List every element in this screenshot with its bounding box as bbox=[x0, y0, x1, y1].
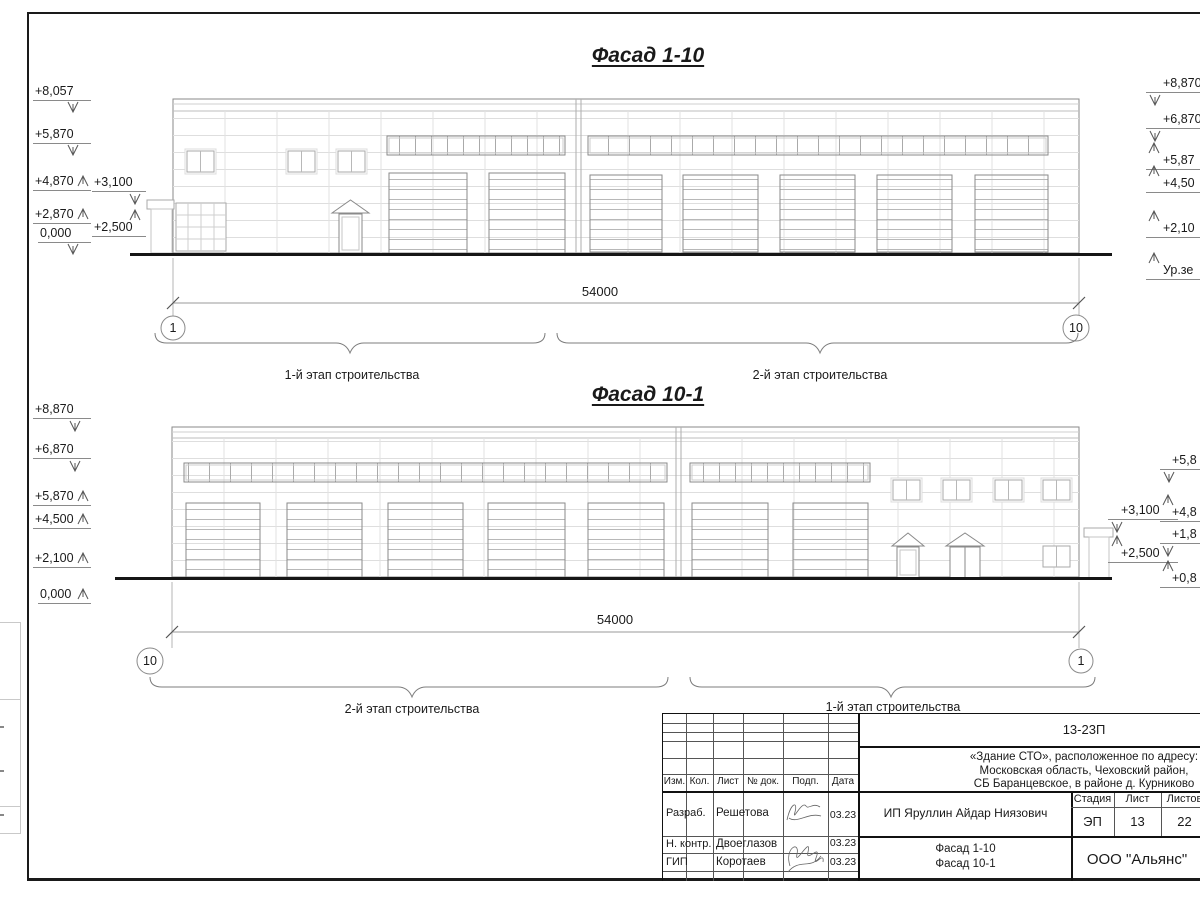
tb-name: Коротаев bbox=[716, 856, 786, 868]
facade-1-10-drawing bbox=[130, 90, 1120, 258]
tb-sheets-value: 22 bbox=[1161, 814, 1200, 829]
tb-address-line: Московская область, Чеховский район, bbox=[934, 765, 1200, 777]
elevation-mark: +6,870 bbox=[33, 442, 91, 459]
axis-bubble-label: 10 bbox=[136, 654, 164, 668]
elevation-mark: +2,10 bbox=[1146, 221, 1200, 238]
tb-name: Решетова bbox=[716, 807, 786, 819]
elevation-arrow-down-icon bbox=[68, 419, 82, 433]
tb-col-kol: Кол. bbox=[686, 776, 713, 787]
elevation-arrow-up-icon bbox=[76, 512, 90, 526]
stage-1-label: 1-й этап строительства bbox=[252, 368, 452, 382]
adjacent-sheet-text-speck bbox=[0, 814, 4, 816]
axis-bubble-label: 1 bbox=[1069, 654, 1093, 668]
axis-bubble-label: 10 bbox=[1062, 321, 1090, 335]
drawing-sheet: Фасад 1-10 bbox=[0, 0, 1200, 900]
elevation-arrow-up-icon bbox=[1161, 493, 1175, 507]
elevation-arrow-up-icon bbox=[76, 551, 90, 565]
stage-1-label: 1-й этап строительства bbox=[793, 700, 993, 714]
tb-address-line: СБ Баранцевское, в районе д. Курниково bbox=[934, 778, 1200, 790]
elevation-mark: +0,8 bbox=[1160, 571, 1200, 588]
elevation-arrow-up-icon bbox=[128, 208, 142, 222]
signature bbox=[781, 792, 828, 880]
elevation-mark: +3,100 bbox=[92, 175, 146, 192]
tb-col-data: Дата bbox=[828, 776, 858, 787]
adjacent-sheet-line bbox=[0, 833, 20, 834]
elevation-mark: +4,50 bbox=[1146, 176, 1200, 193]
elevation-arrow-down-icon bbox=[128, 192, 142, 206]
facade-10-1-title: Фасад 10-1 bbox=[498, 383, 798, 407]
elevation-arrow-down-icon bbox=[66, 100, 80, 114]
elevation-arrow-up-icon bbox=[76, 489, 90, 503]
facade-1-10-title: Фасад 1-10 bbox=[498, 44, 798, 68]
elevation-mark: Ур.зе bbox=[1146, 263, 1200, 280]
tb-sheets-label: Листов bbox=[1161, 793, 1200, 805]
tb-client: ИП Яруллин Айдар Ниязович bbox=[863, 806, 1068, 820]
tb-role: ГИП bbox=[666, 856, 716, 868]
tb-doc-number: 13-23П bbox=[984, 722, 1184, 737]
elevation-arrow-up-icon bbox=[76, 174, 90, 188]
tb-date: 03.23 bbox=[828, 809, 858, 821]
elevation-arrow-up-icon bbox=[76, 587, 90, 601]
adjacent-sheet-line bbox=[0, 622, 20, 623]
facade-10-1-dimensions bbox=[115, 580, 1120, 715]
frame-left bbox=[27, 12, 29, 880]
tb-role: Разраб. bbox=[666, 807, 716, 819]
stage-2-label: 2-й этап строительства bbox=[312, 702, 512, 716]
elevation-mark: +6,870 bbox=[1146, 112, 1200, 129]
title-block: Изм. Кол. Лист № док. Подп. Дата Разраб.… bbox=[662, 713, 1200, 881]
elevation-arrow-up-icon bbox=[1147, 209, 1161, 223]
elevation-arrow-up-icon bbox=[1147, 251, 1161, 265]
tb-stage-label: Стадия bbox=[1071, 793, 1114, 805]
elevation-mark: +2,500 bbox=[92, 220, 146, 237]
elevation-mark: +5,8 bbox=[1160, 453, 1200, 470]
tb-sheet-value: 13 bbox=[1114, 814, 1161, 829]
tb-col-ndok: № док. bbox=[743, 776, 783, 787]
tb-name: Двоеглазов bbox=[716, 838, 786, 850]
tb-company: ООО "Альянс" bbox=[1073, 851, 1200, 868]
elevation-arrow-up-icon bbox=[1110, 534, 1124, 548]
elevation-arrow-down-icon bbox=[66, 242, 80, 256]
elevation-mark: +8,870 bbox=[33, 402, 91, 419]
tb-sheet-title-line: Фасад 1-10 bbox=[863, 843, 1068, 855]
axis-bubble-label: 1 bbox=[161, 321, 185, 335]
elevation-mark: +4,8 bbox=[1160, 505, 1200, 522]
frame-top bbox=[27, 12, 1200, 14]
elevation-arrow-up-icon bbox=[1147, 164, 1161, 178]
elevation-mark: 0,000 bbox=[38, 226, 91, 243]
adjacent-sheet-text-speck bbox=[0, 770, 4, 772]
tb-sheet-label: Лист bbox=[1114, 793, 1161, 805]
elevation-mark: +5,870 bbox=[33, 127, 91, 144]
adjacent-sheet-line bbox=[0, 806, 20, 807]
adjacent-sheet-text-speck bbox=[0, 726, 4, 728]
stage-2-label: 2-й этап строительства bbox=[720, 368, 920, 382]
facade-1-10-dimensions bbox=[120, 256, 1120, 386]
adjacent-sheet-line bbox=[0, 699, 20, 700]
elevation-mark: +8,870 bbox=[1146, 76, 1200, 93]
tb-stage-value: ЭП bbox=[1071, 814, 1114, 829]
elevation-arrow-up-icon bbox=[76, 207, 90, 221]
elevation-arrow-down-icon bbox=[66, 143, 80, 157]
elevation-mark: +1,8 bbox=[1160, 527, 1200, 544]
elevation-arrow-down-icon bbox=[1110, 520, 1124, 534]
tb-col-list: Лист bbox=[713, 776, 743, 787]
adjacent-sheet-line bbox=[20, 622, 21, 834]
elevation-arrow-up-icon bbox=[1147, 141, 1161, 155]
facade-10-1-drawing bbox=[115, 420, 1120, 585]
tb-col-podp: Подп. bbox=[783, 776, 828, 787]
dimension-label: 54000 bbox=[550, 284, 650, 299]
tb-address-line: «Здание СТО», расположенное по адресу: bbox=[934, 751, 1200, 763]
elevation-arrow-down-icon bbox=[68, 459, 82, 473]
tb-date: 03.23 bbox=[828, 856, 858, 868]
tb-date: 03.23 bbox=[828, 837, 858, 849]
dimension-label: 54000 bbox=[565, 612, 665, 627]
elevation-arrow-down-icon bbox=[1148, 93, 1162, 107]
elevation-arrow-up-icon bbox=[1161, 559, 1175, 573]
tb-sheet-title-line: Фасад 10-1 bbox=[863, 858, 1068, 870]
elevation-mark: +8,057 bbox=[33, 84, 91, 101]
elevation-arrow-down-icon bbox=[1162, 470, 1176, 484]
tb-col-izm: Изм. bbox=[663, 776, 686, 787]
tb-role: Н. контр. bbox=[666, 838, 716, 850]
